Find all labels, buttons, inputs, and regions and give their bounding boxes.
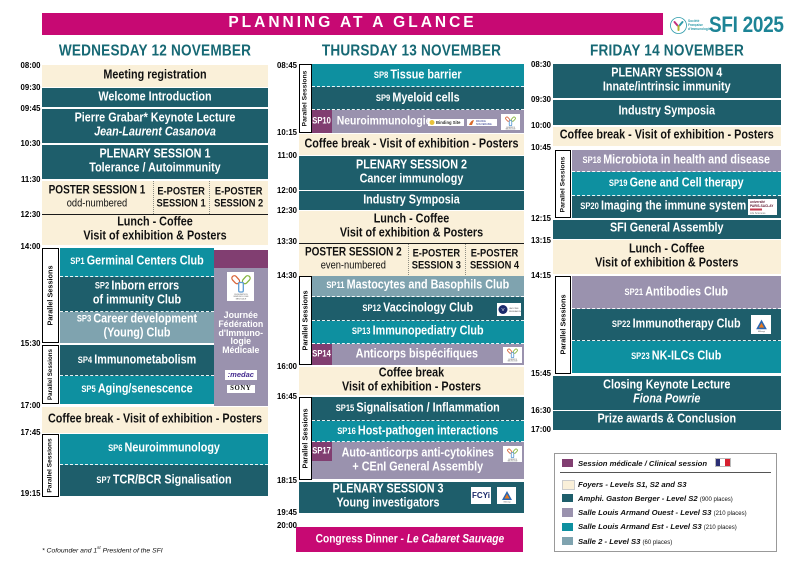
svg-text:Life Sciences: Life Sciences (750, 211, 766, 215)
svg-text:FEDERATION: FEDERATION (508, 358, 517, 361)
svg-text:MEDICALE: MEDICALE (235, 298, 246, 300)
svg-text:Miltenyi: Miltenyi (757, 329, 765, 332)
svg-text:V: V (501, 307, 504, 312)
svg-text:RESEARCH: RESEARCH (509, 310, 521, 313)
svg-text:VACCINE: VACCINE (509, 307, 519, 310)
svg-text:SOUVERAINE: SOUVERAINE (476, 123, 492, 126)
svg-text:Binding Site: Binding Site (436, 120, 461, 125)
svg-text:Miltenyi: Miltenyi (503, 500, 510, 503)
svg-text:FEDERATION: FEDERATION (508, 457, 517, 460)
svg-text:PARIS-SACLAY: PARIS-SACLAY (750, 204, 774, 208)
svg-text:FEDERATION: FEDERATION (506, 125, 515, 128)
